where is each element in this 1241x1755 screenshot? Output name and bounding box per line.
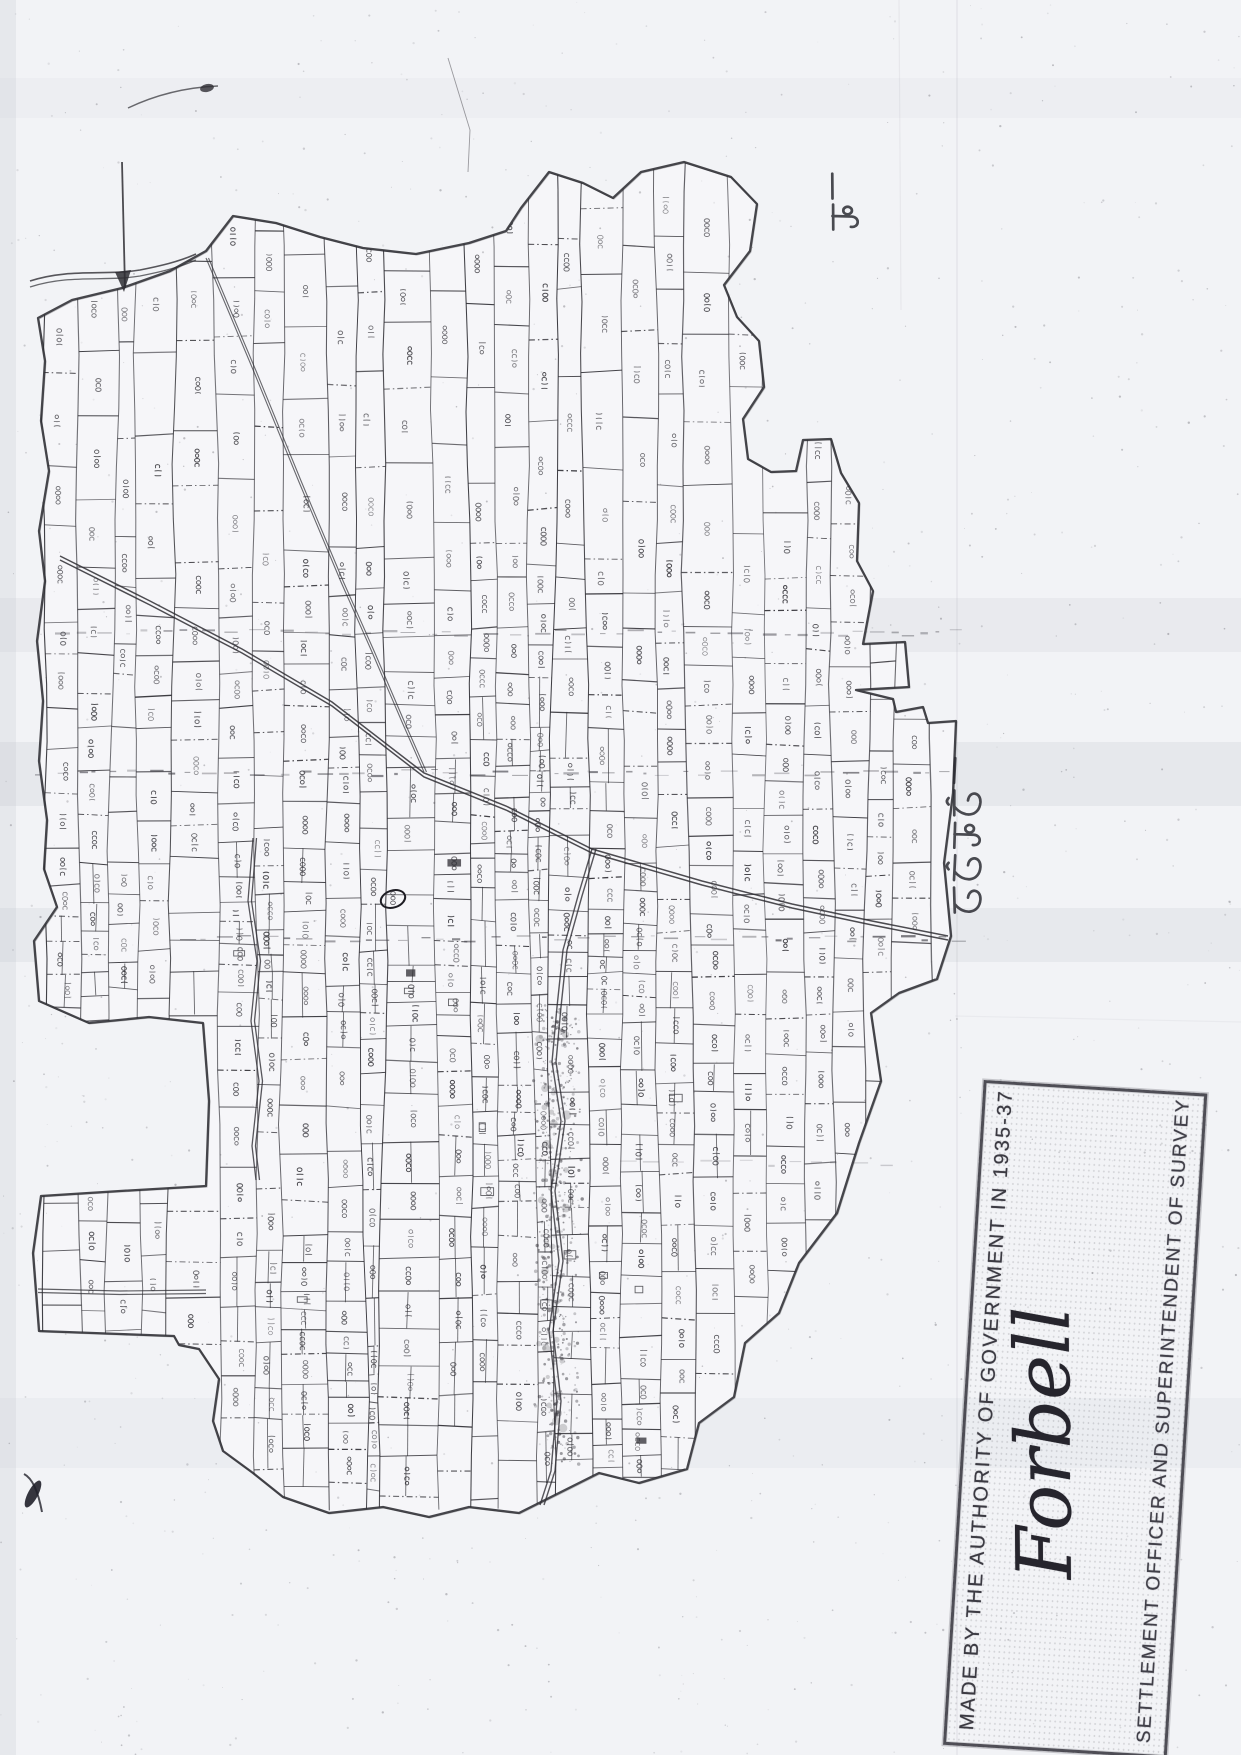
pen-scribble-mark [22, 1474, 45, 1512]
authority-stamp: MADE BY THE AUTHORITY OF GOVERNMENT IN 1… [943, 1086, 1201, 1755]
officer-signature: Forbell [997, 1306, 1088, 1580]
north-label-script-art [832, 174, 857, 230]
stamp-border: MADE BY THE AUTHORITY OF GOVERNMENT IN 1… [943, 1080, 1207, 1755]
scanned-cadastral-map-page: ভাদগাঁও নং ৫ ভেড়তৈল নং ২১ ৩৬০৯ MADE BY … [0, 0, 1241, 1755]
